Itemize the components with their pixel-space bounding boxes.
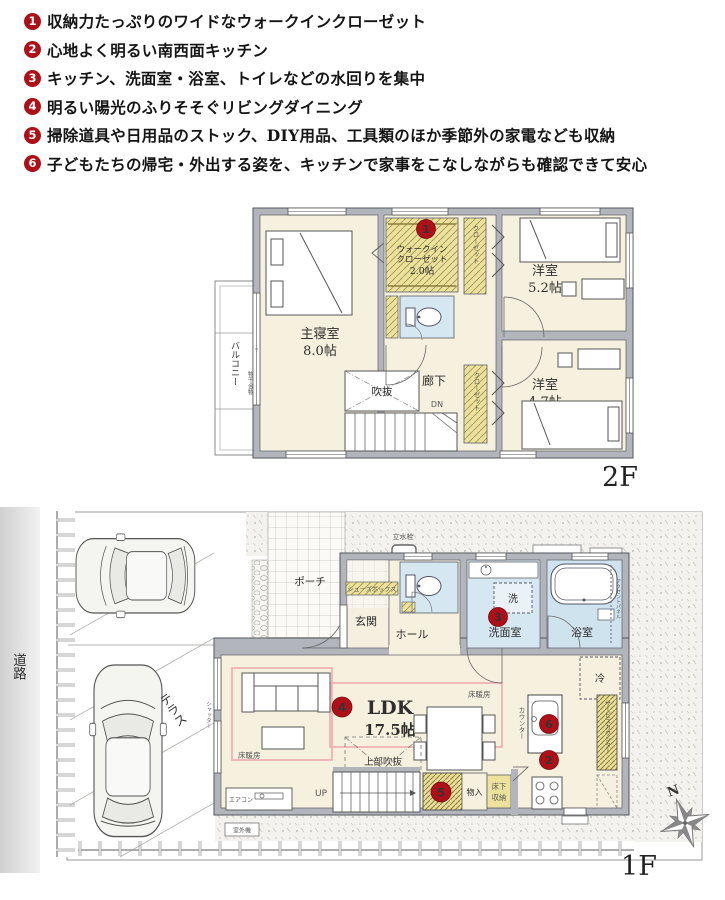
coffee-table-icon (262, 727, 304, 749)
bed-icon-west-bottom (522, 401, 622, 449)
void-2f: 吹抜 (345, 371, 419, 411)
outdoor-unit: 室外機 (225, 823, 259, 836)
washroom-label: 洗面室 (489, 625, 522, 639)
feature-text: 明るい陽光のふりそそぐリビングダイニング (47, 96, 363, 118)
toilet-icon (406, 308, 441, 326)
feature-number-badge: 6 (24, 155, 41, 172)
west-room-top-size: 5.2帖 (528, 281, 562, 296)
ldk-size-label: 17.5帖 (364, 721, 416, 739)
service-counter-label: サービスカウンター (604, 700, 611, 754)
fence-left (56, 511, 75, 857)
floor-heat-right-label: 床暖房 (468, 689, 491, 699)
wic-label-1: ウォークイン (396, 245, 447, 255)
feature-item: 1 収納力たっぷりのワイドなウォークインクローゼット (24, 7, 647, 36)
feature-item: 2 心地よく明るい南西面キッチン (24, 36, 647, 65)
feature-text: 収納力たっぷりのワイドなウォークインクローゼット (47, 10, 426, 32)
fence-bottom (78, 841, 634, 856)
floor-heat-left-label: 床暖房 (238, 750, 261, 760)
tv-board: エアコン (226, 788, 292, 810)
feature-number-badge: 5 (24, 127, 41, 144)
feature-number-badge: 3 (24, 70, 41, 87)
ldk-label: LDK (367, 697, 415, 719)
desk-icon-west-top (562, 279, 624, 299)
feature-item: 3 キッチン、洗面室・浴室、トイレなどの水回りを集中 (24, 64, 647, 93)
balcony-label: バルコニー (229, 341, 240, 386)
road: 道路 (0, 507, 40, 873)
toilet-room-1f (400, 562, 458, 613)
laundry-hanger-label: 物干金物 (247, 370, 254, 396)
floor-plan-1f: 道路 テラス シャッター ポーチ 立水栓 シューズボックス (0, 505, 725, 883)
bathroom-label: 浴室 (571, 625, 593, 639)
marker-4-number: 4 (338, 701, 346, 715)
marker-3-number: 3 (494, 611, 502, 624)
washer-label: 洗 (508, 593, 518, 605)
underfloor-label-2: 収納 (492, 793, 506, 802)
west-room-top-label: 洋室 (532, 263, 558, 279)
balcony: バルコニー 物干金物 (215, 281, 258, 455)
vanity-counter (469, 562, 538, 578)
road-label: 道路 (10, 653, 27, 681)
marker-5: 5 (431, 782, 451, 802)
feature-number-badge: 1 (24, 13, 41, 30)
feature-item: 6 子どもたちの帰宅・外出する姿を、キッチンで家事をこなしながらも確認できて安心 (24, 150, 647, 179)
feature-list: 1 収納力たっぷりのワイドなウォークインクローゼット 2 心地よく明るい南西面キ… (24, 7, 647, 178)
accent-panel-label: アクセントパネル (615, 579, 621, 619)
marker-1-number: 1 (422, 223, 430, 236)
underfloor-storage: 床下 収納 (487, 775, 511, 808)
aircon-label: エアコン (229, 797, 253, 804)
master-bedroom-label: 主寝室 (300, 326, 339, 342)
sofa-icon (242, 673, 330, 712)
marker-2-number: 2 (545, 754, 553, 767)
underfloor-label-1: 床下 (492, 782, 506, 791)
floor-plan-2f: バルコニー 物干金物 ウォークイン クローゼット 2.0帖 クローゼット クロー… (200, 193, 662, 495)
marker-2: 2 (540, 751, 559, 770)
feature-number-badge: 4 (24, 98, 41, 115)
stairs-up-label: UP (315, 789, 328, 799)
feature-item: 5 掃除道具や日用品のストック、DIY用品、工具類のほか季節外の家電なども収納 (24, 121, 647, 150)
hall-label-2f: 廊下 (422, 373, 446, 388)
feature-item: 4 明るい陽光のふりそそぐリビングダイニング (24, 93, 647, 122)
entrance-label: 玄関 (355, 614, 377, 628)
stove-icon (532, 777, 562, 809)
marker-3: 3 (489, 608, 508, 627)
shoebox-label: シューズボックス (347, 586, 396, 594)
counter-label: カウンター (517, 707, 525, 740)
porch-label: ポーチ (294, 576, 326, 588)
upper-void-label: 上部吹抜 (364, 756, 403, 768)
service-counter: サービスカウンター (597, 695, 617, 770)
shutter-label: シャッター (205, 701, 212, 729)
feature-text: 子どもたちの帰宅・外出する姿を、キッチンで家事をこなしながらも確認できて安心 (47, 153, 647, 175)
bed-icon-west-top (520, 218, 620, 262)
marker-6-number: 6 (545, 718, 553, 731)
feature-text: 心地よく明るい南西面キッチン (47, 39, 268, 61)
marker-1: 1 (417, 220, 436, 239)
car-icon-bottom (90, 665, 167, 837)
tap-label: 立水栓 (393, 532, 414, 541)
closet-top-label: クローゼット (471, 225, 479, 264)
kitchen-wall (511, 769, 518, 815)
car-icon-top (76, 534, 195, 618)
closet-bottom-label: クローゼット (472, 372, 480, 412)
floor-label-2f: 2F (602, 462, 638, 493)
toilet-room-2f (386, 296, 454, 340)
marker-5-number: 5 (437, 786, 445, 800)
marker-4: 4 (332, 697, 352, 717)
fridge-box: 冷 (580, 657, 620, 699)
outdoor-unit-label: 室外機 (233, 827, 251, 835)
wic-size-label: 2.0帖 (410, 265, 435, 277)
hall-label-1f: ホール (396, 628, 429, 641)
void-label: 吹抜 (372, 385, 393, 398)
feature-number-badge: 2 (24, 41, 41, 58)
west-room-bottom-label: 洋室 (532, 377, 558, 393)
floor-label-1f: 1F (621, 851, 657, 882)
toilet-icon (406, 575, 441, 597)
closet-1f: 物入 (462, 773, 487, 810)
wic-label-2: クローゼット (396, 254, 447, 265)
feature-text: 掃除道具や日用品のストック、DIY用品、工具類のほか季節外の家電なども収納 (47, 124, 615, 146)
feature-text: キッチン、洗面室・浴室、トイレなどの水回りを集中 (47, 67, 425, 89)
marker-6: 6 (540, 715, 559, 734)
stairs-down-label: DN (431, 400, 443, 409)
speckle-right (626, 512, 702, 842)
closet-1f-label: 物入 (467, 787, 483, 797)
fridge-label: 冷 (595, 672, 605, 685)
bed-icon-master (266, 231, 352, 315)
master-bedroom-size: 8.0帖 (303, 344, 337, 359)
